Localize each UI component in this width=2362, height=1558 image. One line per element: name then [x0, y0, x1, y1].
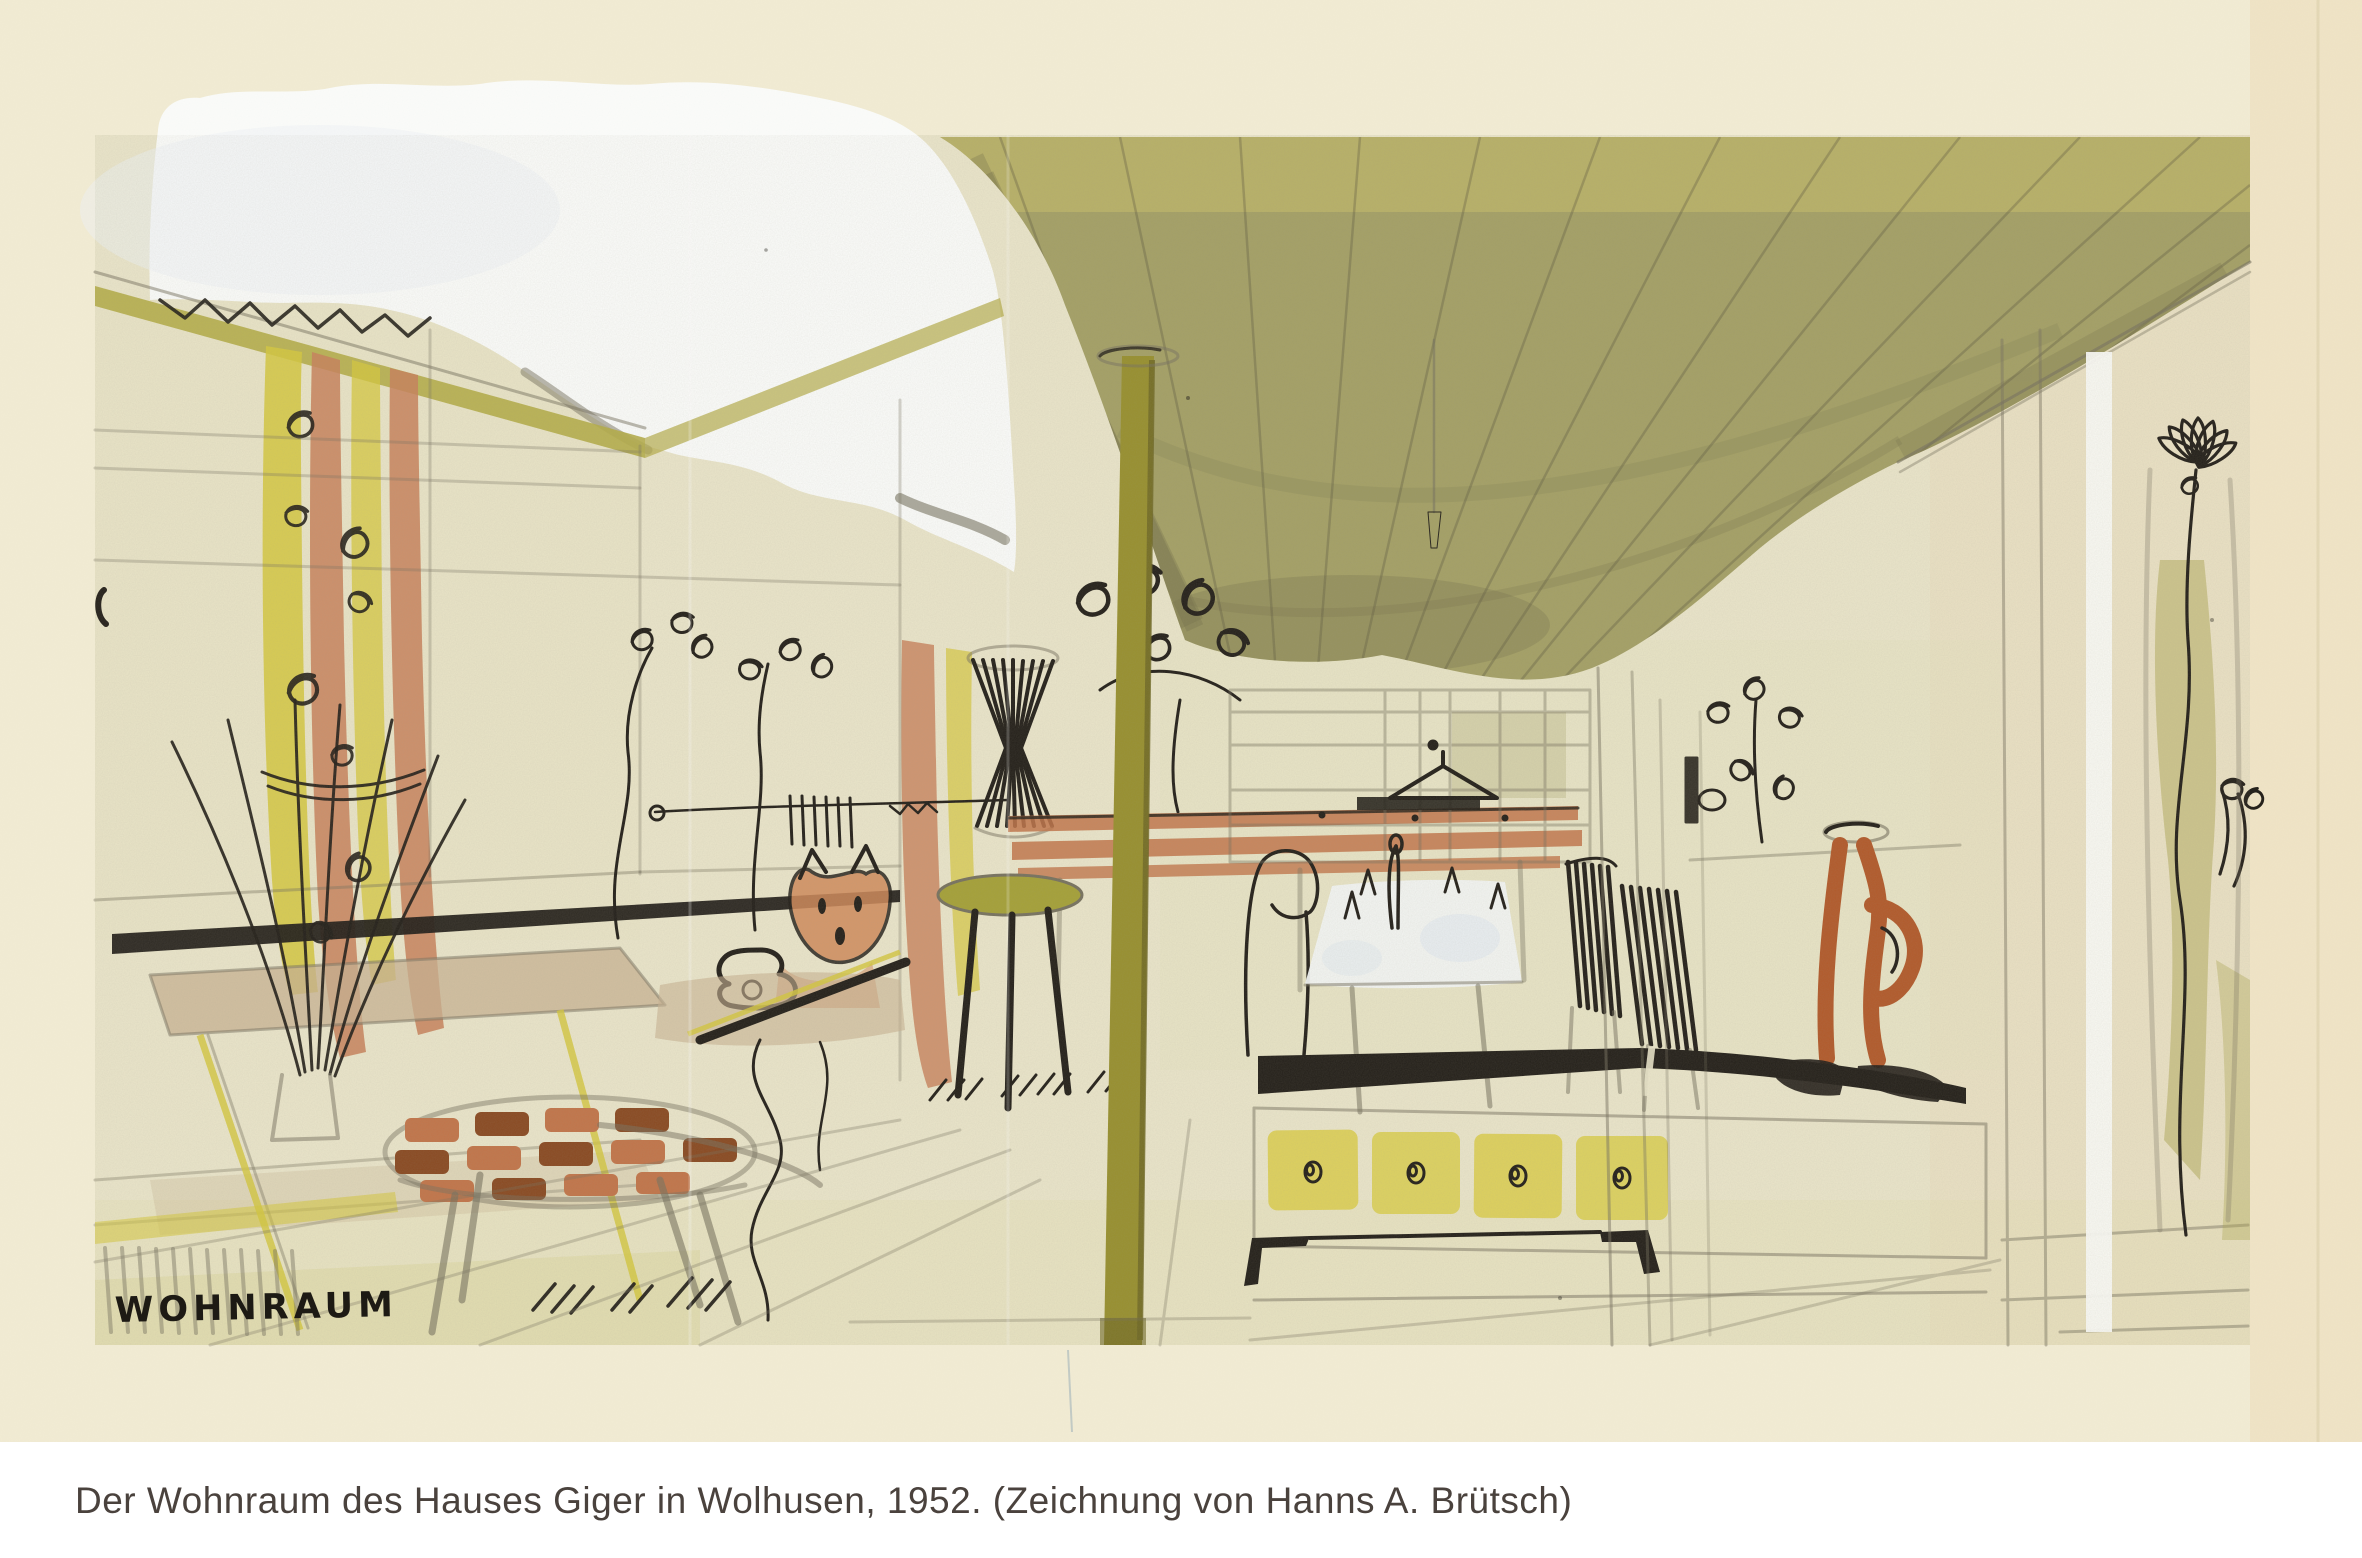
- drawing-scan: WOHNRAUM: [0, 0, 2362, 1442]
- caption: Der Wohnraum des Hauses Giger in Wolhuse…: [75, 1480, 1572, 1522]
- caption-band: Der Wohnraum des Hauses Giger in Wolhuse…: [0, 1442, 2362, 1558]
- scanned-page: WOHNRAUM Der Wohnraum des Hauses Giger i…: [0, 0, 2362, 1558]
- room-label: WOHNRAUM: [114, 1285, 398, 1331]
- page-grain: [0, 0, 2362, 1442]
